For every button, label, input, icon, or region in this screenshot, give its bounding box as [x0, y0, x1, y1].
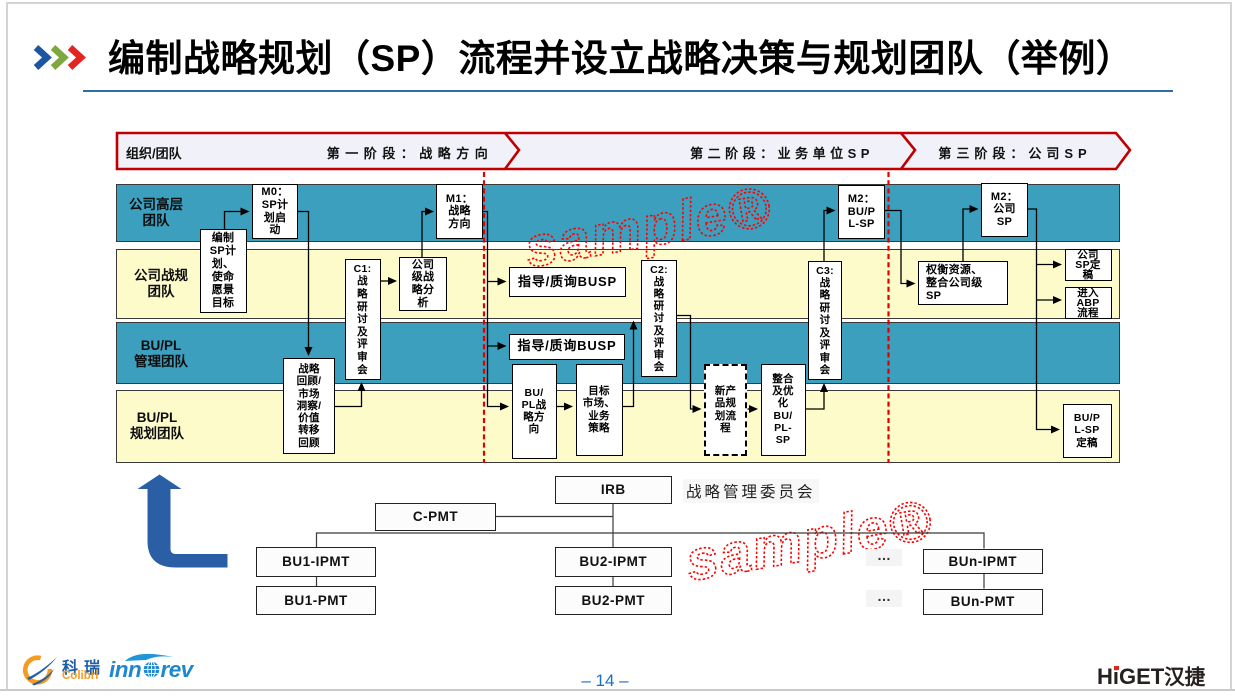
svg-text:sample®: sample® [681, 488, 937, 593]
svg-text:sample®: sample® [520, 174, 776, 279]
svg-text:rev: rev [161, 657, 195, 682]
svg-text:inn: inn [109, 657, 141, 682]
